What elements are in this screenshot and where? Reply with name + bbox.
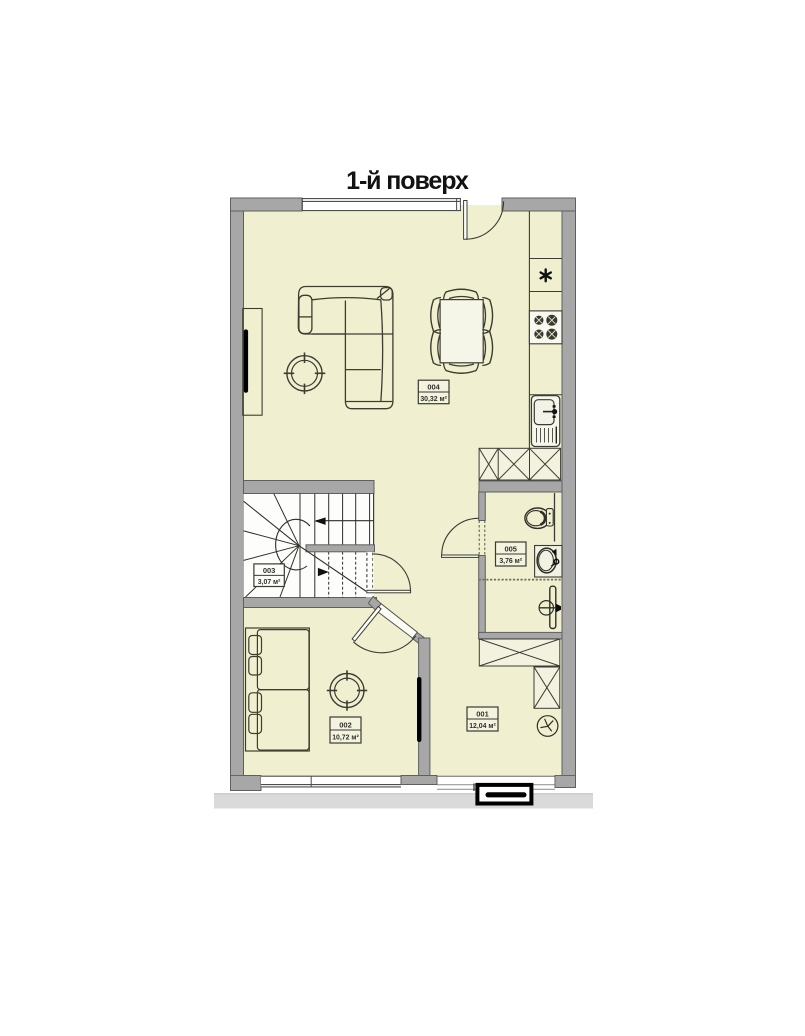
svg-text:3,07 м²: 3,07 м² (258, 579, 281, 586)
svg-text:004: 004 (427, 383, 440, 392)
svg-text:1-й поверх: 1-й поверх (346, 167, 469, 195)
svg-text:001: 001 (476, 710, 489, 719)
svg-text:12,04 м²: 12,04 м² (469, 723, 496, 730)
svg-text:003: 003 (263, 566, 276, 575)
svg-text:30,32 м²: 30,32 м² (420, 396, 447, 403)
svg-text:005: 005 (504, 545, 517, 554)
svg-text:3,76 м²: 3,76 м² (499, 558, 522, 565)
svg-text:002: 002 (339, 721, 352, 730)
svg-text:10,72 м²: 10,72 м² (332, 735, 359, 742)
